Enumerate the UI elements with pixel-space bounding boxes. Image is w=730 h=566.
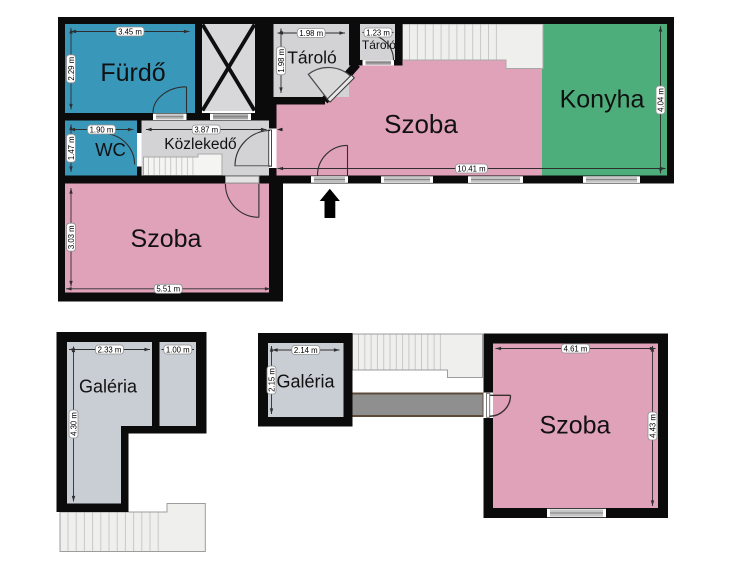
svg-text:Tároló: Tároló	[287, 48, 337, 68]
svg-text:Szoba: Szoba	[540, 412, 611, 440]
svg-text:1.98 m: 1.98 m	[277, 49, 286, 73]
svg-text:3.03 m: 3.03 m	[67, 225, 76, 249]
svg-text:Galéria: Galéria	[79, 377, 138, 397]
svg-text:Közlekedő: Közlekedő	[164, 136, 236, 153]
svg-text:2.33 m: 2.33 m	[98, 345, 122, 354]
svg-text:1.47 m: 1.47 m	[67, 136, 76, 160]
svg-text:4.61 m: 4.61 m	[564, 344, 588, 353]
svg-text:1.23 m: 1.23 m	[366, 28, 390, 37]
svg-text:3.45 m: 3.45 m	[118, 27, 142, 36]
svg-text:Szoba: Szoba	[384, 109, 458, 139]
svg-text:1.00 m: 1.00 m	[166, 345, 190, 354]
svg-text:4.43 m: 4.43 m	[648, 414, 657, 438]
svg-text:5.51 m: 5.51 m	[156, 285, 180, 294]
svg-text:2.29 m: 2.29 m	[67, 57, 76, 81]
svg-text:1.90 m: 1.90 m	[90, 125, 114, 134]
svg-text:4.30 m: 4.30 m	[69, 412, 78, 436]
svg-text:2.15 m: 2.15 m	[267, 368, 276, 392]
svg-text:Fürdő: Fürdő	[100, 59, 165, 87]
svg-text:Szoba: Szoba	[131, 225, 202, 253]
svg-text:10.41 m: 10.41 m	[457, 164, 485, 173]
svg-text:Konyha: Konyha	[560, 86, 645, 114]
svg-text:1.98 m: 1.98 m	[299, 29, 323, 38]
svg-text:2.14 m: 2.14 m	[294, 346, 318, 355]
svg-text:Tároló: Tároló	[362, 38, 396, 52]
svg-text:3.87 m: 3.87 m	[194, 125, 218, 134]
svg-text:Galéria: Galéria	[276, 372, 335, 392]
svg-text:WC: WC	[95, 139, 126, 160]
svg-text:4.04 m: 4.04 m	[656, 88, 665, 112]
